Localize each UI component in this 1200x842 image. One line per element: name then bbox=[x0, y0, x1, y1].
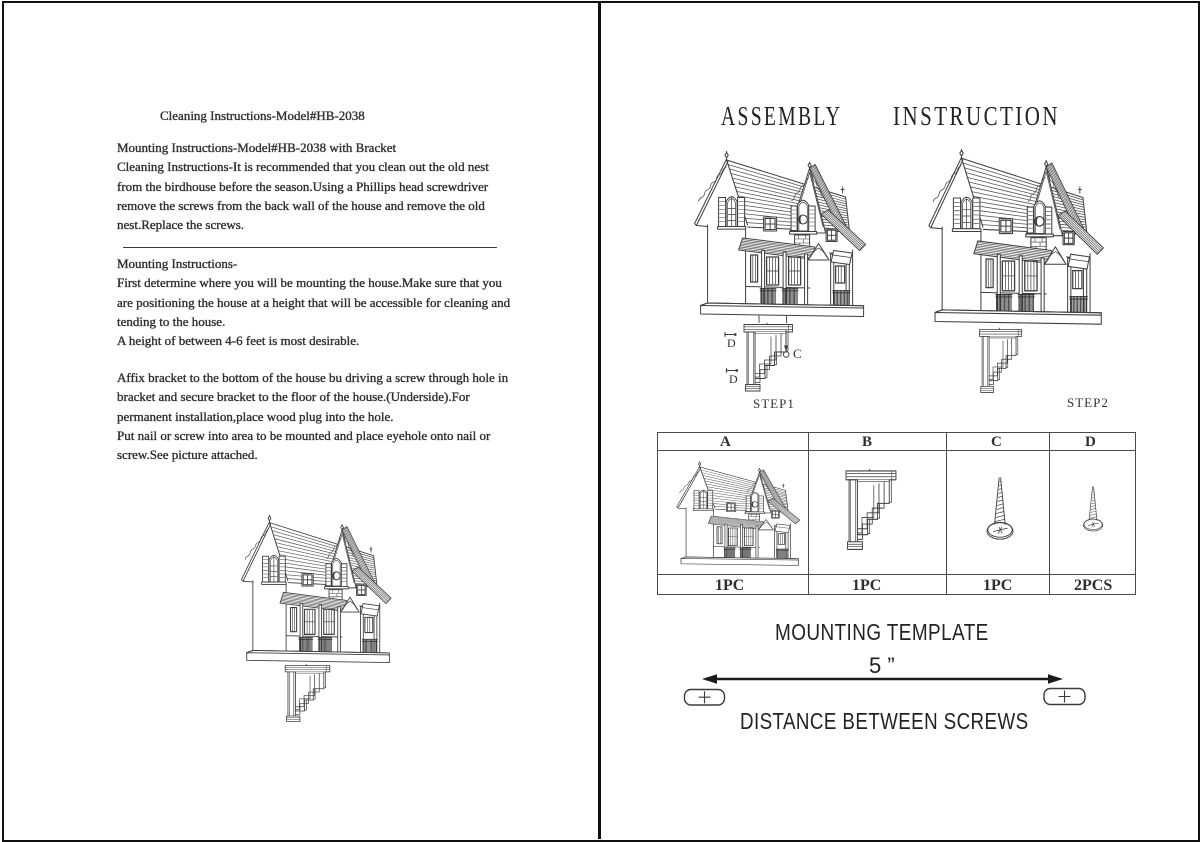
svg-text:STEP2: STEP2 bbox=[1067, 395, 1109, 410]
svg-text:C: C bbox=[793, 346, 802, 361]
svg-text:D: D bbox=[727, 336, 736, 350]
svg-text:D: D bbox=[729, 372, 738, 386]
svg-text:STEP1: STEP1 bbox=[753, 396, 795, 411]
